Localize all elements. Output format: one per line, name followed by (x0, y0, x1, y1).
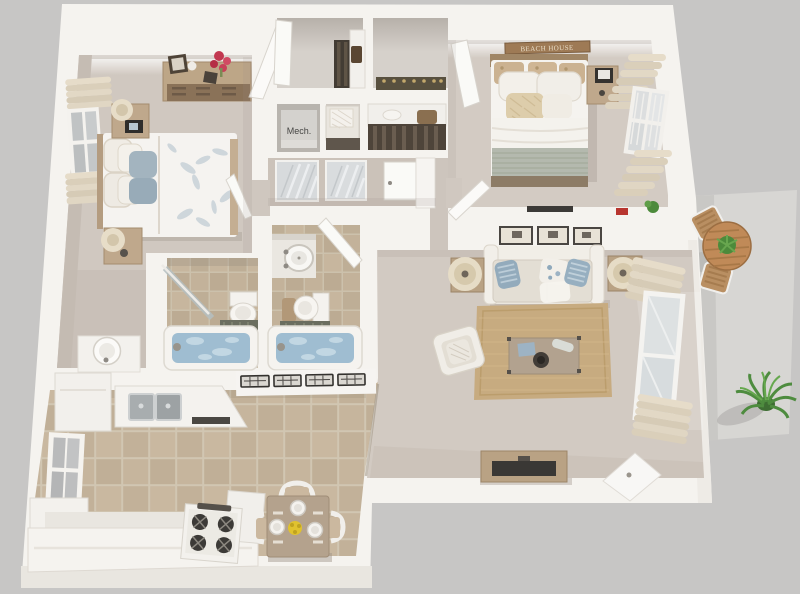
svg-text:Mech.: Mech. (287, 126, 312, 136)
svg-text:BEACH HOUSE: BEACH HOUSE (520, 44, 573, 53)
